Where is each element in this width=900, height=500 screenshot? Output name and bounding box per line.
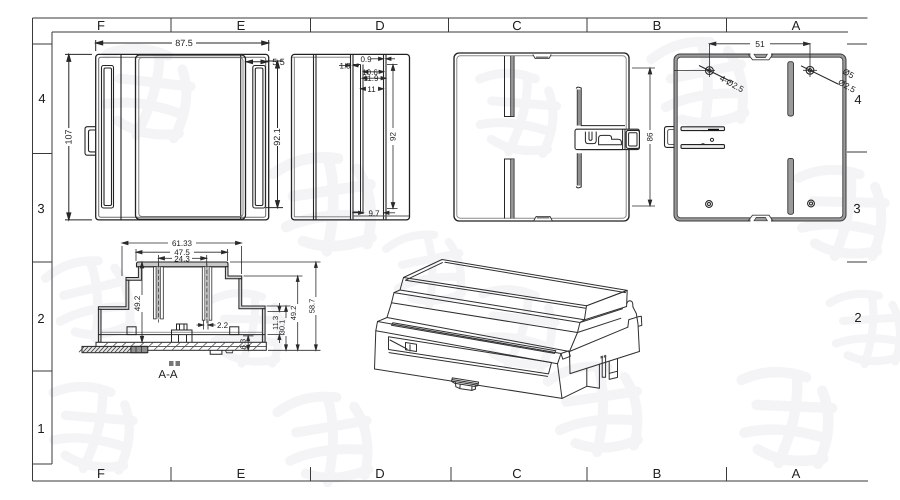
svg-text:92.1: 92.1 (272, 128, 282, 146)
svg-text:A: A (792, 466, 801, 481)
svg-text:30.1: 30.1 (278, 320, 287, 335)
svg-text:4: 4 (38, 91, 45, 106)
svg-text:3: 3 (37, 201, 44, 216)
svg-text:61.33: 61.33 (172, 239, 193, 248)
svg-text:0.9: 0.9 (360, 55, 372, 64)
svg-text:4: 4 (854, 92, 861, 107)
svg-text:E: E (237, 466, 246, 481)
svg-text:51: 51 (755, 39, 765, 49)
svg-text:58.7: 58.7 (307, 299, 316, 314)
svg-text:B: B (653, 466, 662, 481)
svg-text:6.3: 6.3 (239, 339, 248, 349)
svg-text:B: B (653, 18, 662, 33)
svg-text:F: F (97, 18, 105, 33)
svg-text:1.3: 1.3 (339, 61, 351, 70)
svg-text:F: F (97, 466, 105, 481)
svg-text:A: A (792, 18, 801, 33)
svg-text:49.2: 49.2 (289, 306, 298, 321)
svg-text:9.7: 9.7 (368, 209, 380, 218)
svg-text:E: E (237, 18, 246, 33)
svg-text:3: 3 (853, 201, 860, 216)
svg-text:2: 2 (37, 311, 44, 326)
svg-text:1: 1 (37, 421, 44, 436)
svg-text:11.9: 11.9 (364, 74, 380, 83)
svg-text:87.5: 87.5 (175, 38, 193, 48)
svg-text:C: C (512, 18, 521, 33)
svg-text:86: 86 (646, 132, 655, 141)
svg-text:2.2: 2.2 (217, 321, 229, 330)
svg-text:49.2: 49.2 (133, 295, 142, 311)
svg-text:D: D (375, 18, 384, 33)
svg-text:D: D (375, 466, 384, 481)
svg-text:92: 92 (389, 132, 398, 141)
svg-text:C: C (512, 466, 521, 481)
svg-text:11: 11 (367, 85, 376, 94)
svg-text:2: 2 (854, 310, 861, 325)
svg-text:A-A: A-A (158, 369, 178, 381)
svg-text:5.5: 5.5 (272, 57, 285, 67)
svg-text:24.3: 24.3 (174, 254, 190, 263)
svg-text:107: 107 (64, 129, 74, 144)
